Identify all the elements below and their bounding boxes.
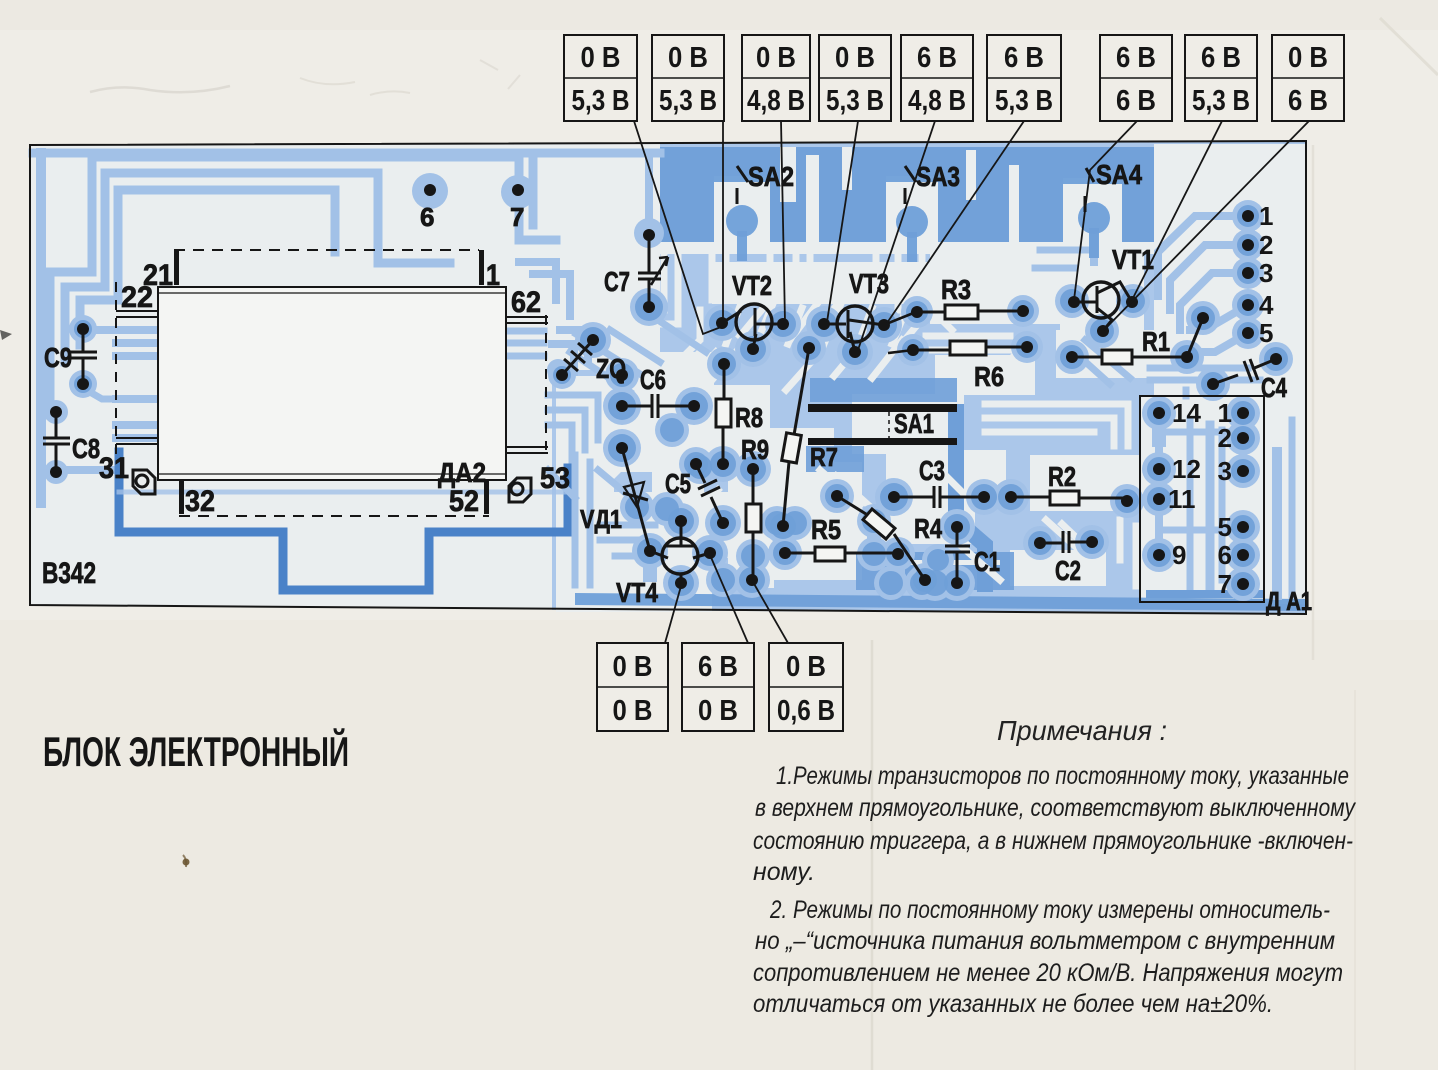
svg-text:ному.: ному.: [753, 858, 815, 886]
svg-text:VT4: VT4: [616, 577, 658, 608]
svg-text:VT1: VT1: [1112, 244, 1154, 275]
svg-text:2: 2: [1259, 230, 1273, 260]
svg-text:62: 62: [511, 286, 541, 319]
svg-text:5,3 В: 5,3 В: [659, 85, 717, 117]
svg-text:4: 4: [1259, 290, 1274, 320]
svg-text:состоянию триггера, а в нижнем: состоянию триггера, а в нижнем прямоугол…: [753, 827, 1353, 855]
svg-text:5,3 В: 5,3 В: [1192, 85, 1250, 117]
svg-text:6 В: 6 В: [698, 651, 738, 683]
svg-text:0,6 В: 0,6 В: [777, 695, 835, 727]
svg-text:2. Режимы по постоянному току: 2. Режимы по постоянному току измерены о…: [769, 896, 1330, 924]
svg-text:12: 12: [1172, 454, 1201, 484]
svg-text:2: 2: [1218, 423, 1232, 453]
svg-text:7: 7: [1218, 569, 1232, 599]
svg-text:11: 11: [1168, 484, 1196, 514]
svg-text:0 В: 0 В: [581, 42, 621, 74]
svg-text:С5: С5: [665, 468, 691, 499]
svg-text:22: 22: [121, 281, 153, 314]
svg-text:31: 31: [99, 452, 129, 485]
svg-text:R9: R9: [741, 434, 769, 465]
svg-text:1.Режимы транзисторов по посто: 1.Режимы транзисторов по постоянному ток…: [776, 762, 1349, 790]
svg-text:VT3: VT3: [849, 268, 889, 299]
svg-text:6 В: 6 В: [1201, 42, 1241, 74]
svg-text:1: 1: [1259, 201, 1273, 231]
svg-text:R3: R3: [941, 274, 971, 305]
svg-text:14: 14: [1172, 398, 1201, 428]
svg-text:VT2: VT2: [732, 270, 772, 301]
svg-text:0 В: 0 В: [756, 42, 796, 74]
svg-text:БЛОК ЭЛЕКТРОННЫЙ: БЛОК ЭЛЕКТРОННЫЙ: [43, 727, 349, 775]
svg-text:С8: С8: [72, 433, 100, 464]
svg-text:С9: С9: [44, 342, 72, 373]
svg-text:3: 3: [1259, 258, 1273, 288]
svg-text:6: 6: [420, 202, 434, 232]
svg-text:С6: С6: [640, 364, 666, 395]
svg-text:R8: R8: [735, 402, 763, 433]
svg-text:SA3: SA3: [916, 161, 960, 192]
svg-text:С7: С7: [604, 266, 630, 297]
svg-text:52: 52: [449, 485, 479, 518]
svg-text:6: 6: [1218, 540, 1232, 570]
svg-text:0 В: 0 В: [1288, 42, 1328, 74]
svg-text:R4: R4: [914, 513, 942, 544]
svg-text:5,3 В: 5,3 В: [572, 85, 630, 117]
svg-text:С3: С3: [919, 455, 945, 486]
svg-text:R1: R1: [1142, 326, 1170, 357]
svg-text:Д А1: Д А1: [1266, 586, 1312, 616]
svg-text:но „–“источника питания вольтм: но „–“источника питания вольтметром с вн…: [755, 927, 1335, 955]
svg-text:6 В: 6 В: [1288, 85, 1328, 117]
svg-text:В342: В342: [42, 557, 96, 590]
svg-text:в верхнем прямоугольнике, соот: в верхнем прямоугольнике, соответствуют …: [755, 794, 1356, 822]
svg-text:R2: R2: [1048, 461, 1076, 492]
svg-text:SA4: SA4: [1096, 159, 1142, 190]
svg-text:6 В: 6 В: [1004, 42, 1044, 74]
svg-text:4,8 В: 4,8 В: [908, 85, 966, 117]
svg-text:С4: С4: [1261, 372, 1287, 403]
svg-text:53: 53: [540, 462, 570, 495]
svg-text:С2: С2: [1055, 555, 1081, 586]
svg-text:ДА2: ДА2: [438, 457, 486, 488]
svg-text:SA2: SA2: [748, 161, 794, 192]
svg-text:3: 3: [1218, 456, 1232, 486]
svg-text:4,8 В: 4,8 В: [747, 85, 805, 117]
svg-text:Примечания :: Примечания :: [997, 715, 1167, 746]
svg-text:6 В: 6 В: [1116, 42, 1156, 74]
svg-text:SA1: SA1: [894, 408, 934, 439]
svg-text:5,3 В: 5,3 В: [826, 85, 884, 117]
svg-text:7: 7: [510, 202, 524, 232]
svg-text:R5: R5: [811, 514, 841, 545]
svg-text:6 В: 6 В: [917, 42, 957, 74]
svg-text:0 В: 0 В: [786, 651, 826, 683]
svg-text:0 В: 0 В: [613, 695, 653, 727]
svg-text:5,3 В: 5,3 В: [995, 85, 1053, 117]
svg-text:1: 1: [486, 259, 500, 292]
svg-text:0 В: 0 В: [668, 42, 708, 74]
svg-text:0 В: 0 В: [613, 651, 653, 683]
svg-text:32: 32: [185, 485, 215, 518]
svg-text:ZQ: ZQ: [596, 353, 626, 384]
svg-text:С1: С1: [974, 546, 1000, 577]
svg-text:0 В: 0 В: [698, 695, 738, 727]
svg-text:5: 5: [1259, 318, 1273, 348]
svg-text:VД1: VД1: [580, 504, 622, 534]
svg-text:отличаться от указанных не бо: отличаться от указанных не более чем на±…: [753, 990, 1273, 1018]
svg-text:0 В: 0 В: [835, 42, 875, 74]
svg-text:5: 5: [1218, 512, 1232, 542]
svg-text:сопротивлением не менее 20 кОм: сопротивлением не менее 20 кОм/В. Напряж…: [753, 959, 1343, 987]
svg-text:6 В: 6 В: [1116, 85, 1156, 117]
svg-text:R6: R6: [974, 361, 1004, 392]
svg-text:R7: R7: [810, 442, 838, 472]
svg-text:9: 9: [1172, 540, 1186, 570]
